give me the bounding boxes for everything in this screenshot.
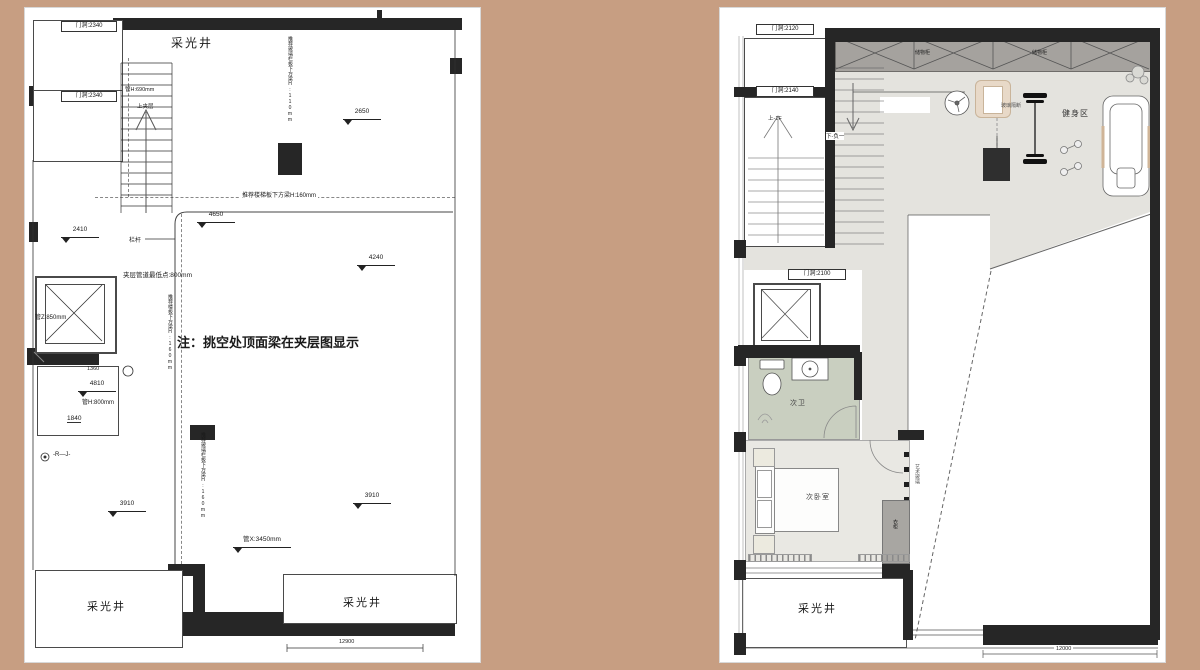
railing-label: 栏杆 xyxy=(129,235,141,244)
wall xyxy=(734,432,746,452)
wall xyxy=(734,633,746,655)
treadmill-icon xyxy=(1103,96,1149,196)
door-label: 门洞:2100 xyxy=(788,269,846,280)
beam-note-vertical: 推荐玻璃栏板下方梁H:160mm xyxy=(200,432,207,519)
wall xyxy=(1150,28,1160,640)
stairs-up-arrow xyxy=(136,110,156,213)
level-marker: 2650 xyxy=(343,108,381,120)
light-well-label: 采光井 xyxy=(798,600,837,616)
stairs2-treads xyxy=(833,68,884,244)
dimension-line xyxy=(287,644,423,652)
nightstand xyxy=(753,448,775,467)
stair-up-label: 上夹层 xyxy=(137,102,154,110)
bedroom-label: 次卧室 xyxy=(806,492,830,502)
dim-1360: 1360 xyxy=(87,366,99,372)
wall xyxy=(898,430,924,440)
wall xyxy=(983,625,1158,645)
dim-1840: 1840 xyxy=(67,415,81,423)
mezzanine-edge xyxy=(175,212,453,564)
door-diagonal xyxy=(34,352,44,362)
pillow xyxy=(757,470,772,498)
void-diagonal-dashed xyxy=(915,271,991,640)
level-marker: 2410 xyxy=(61,226,99,238)
nightstand xyxy=(753,535,775,554)
curtain-strip xyxy=(748,554,812,562)
elevator-x xyxy=(762,290,808,338)
bathroom-label: 次卫 xyxy=(790,398,806,408)
curtain-strip xyxy=(858,554,910,562)
pillow xyxy=(757,500,772,528)
stair-up-label: 上-1F xyxy=(768,114,782,122)
wardrobe-label: 衣柜 xyxy=(892,519,899,529)
bathroom-door-arc xyxy=(824,406,856,438)
beam-note-vertical: 推荐楼板下方梁H:160mm xyxy=(167,294,174,371)
gym-mat xyxy=(975,80,1011,118)
light-well-label: 采光井 xyxy=(87,598,126,614)
stair-down-label: 下-负一 xyxy=(826,132,844,140)
window-lines xyxy=(908,630,983,635)
left-wall-lines xyxy=(739,36,743,648)
duct-note: 夹层管道最低点:800mm xyxy=(123,269,192,279)
door-label: 门洞:2340 xyxy=(61,91,117,102)
bedroom-door-arc xyxy=(870,440,903,473)
stair-pipe-label: 管H:690mm xyxy=(125,85,154,93)
wall xyxy=(903,570,913,640)
level-marker: 4810 xyxy=(78,380,116,392)
pipe-circle xyxy=(123,366,133,376)
level-marker: 4650 xyxy=(197,211,235,223)
gym-label: 健身区 xyxy=(1062,108,1089,119)
light-well-label: 采光井 xyxy=(171,34,213,51)
void-edge xyxy=(908,215,990,440)
toilet-tank xyxy=(760,360,784,369)
art-partition-label: 艺术玻璃 xyxy=(914,464,921,484)
dim-bottom: 12000 xyxy=(1054,646,1073,652)
wall xyxy=(734,240,746,258)
rj-label: -R—J- xyxy=(53,452,70,458)
main-note: 注：挑空处顶面梁在夹层图显示 xyxy=(177,332,359,351)
wall xyxy=(828,28,1158,42)
gym-mat-inner xyxy=(983,86,1003,114)
right-plan-linework xyxy=(720,8,1165,662)
pipe-h-label: 管H:800mm xyxy=(82,397,114,406)
toilet-bowl xyxy=(763,373,781,395)
door-label: 门洞:2340 xyxy=(61,21,117,32)
level-marker-pipe-x: 管X:3450mm xyxy=(233,536,291,548)
left-plan-sheet: 门洞:2340 门洞:2340 2650 2410 4650 4240 4810… xyxy=(25,8,480,662)
door-label: 门洞:2120 xyxy=(756,24,814,35)
wall xyxy=(854,352,862,400)
door-label: 门洞:2140 xyxy=(756,86,814,97)
plant-icon xyxy=(1126,66,1148,84)
storage-label: 储物柜 xyxy=(1032,49,1047,56)
void-diagonal xyxy=(990,212,1157,269)
right-plan-sheet: 门洞:2120 门洞:2140 门洞:2100 衣柜 xyxy=(720,8,1165,662)
punch-bag xyxy=(983,148,1010,181)
level-marker: 3910 xyxy=(108,500,146,512)
window-lines xyxy=(744,568,890,573)
glass-partition-label: 玻璃隔断 xyxy=(1001,102,1021,109)
dumbbells-icon xyxy=(1061,141,1082,176)
light-well-label: 采光井 xyxy=(343,594,382,610)
beam-note-vertical: 推荐玻璃栏板下方梁H:110mm xyxy=(287,36,294,123)
level-marker: 4240 xyxy=(357,254,395,266)
pipe-z-label: 管Z:850mm xyxy=(35,312,66,321)
dim-bottom: 12900 xyxy=(339,639,354,645)
level-marker: 3910 xyxy=(353,492,391,504)
wall xyxy=(738,345,860,358)
shower-symbol xyxy=(758,414,772,423)
beam-note-top: 推荐楼梯板下方梁H:160mm xyxy=(240,190,318,199)
storage-label: 储物柜 xyxy=(915,49,930,56)
stairs1-treads xyxy=(748,158,824,235)
wall xyxy=(734,560,746,580)
canvas: { "palette": { "background": "#c79e82", … xyxy=(0,0,1200,670)
